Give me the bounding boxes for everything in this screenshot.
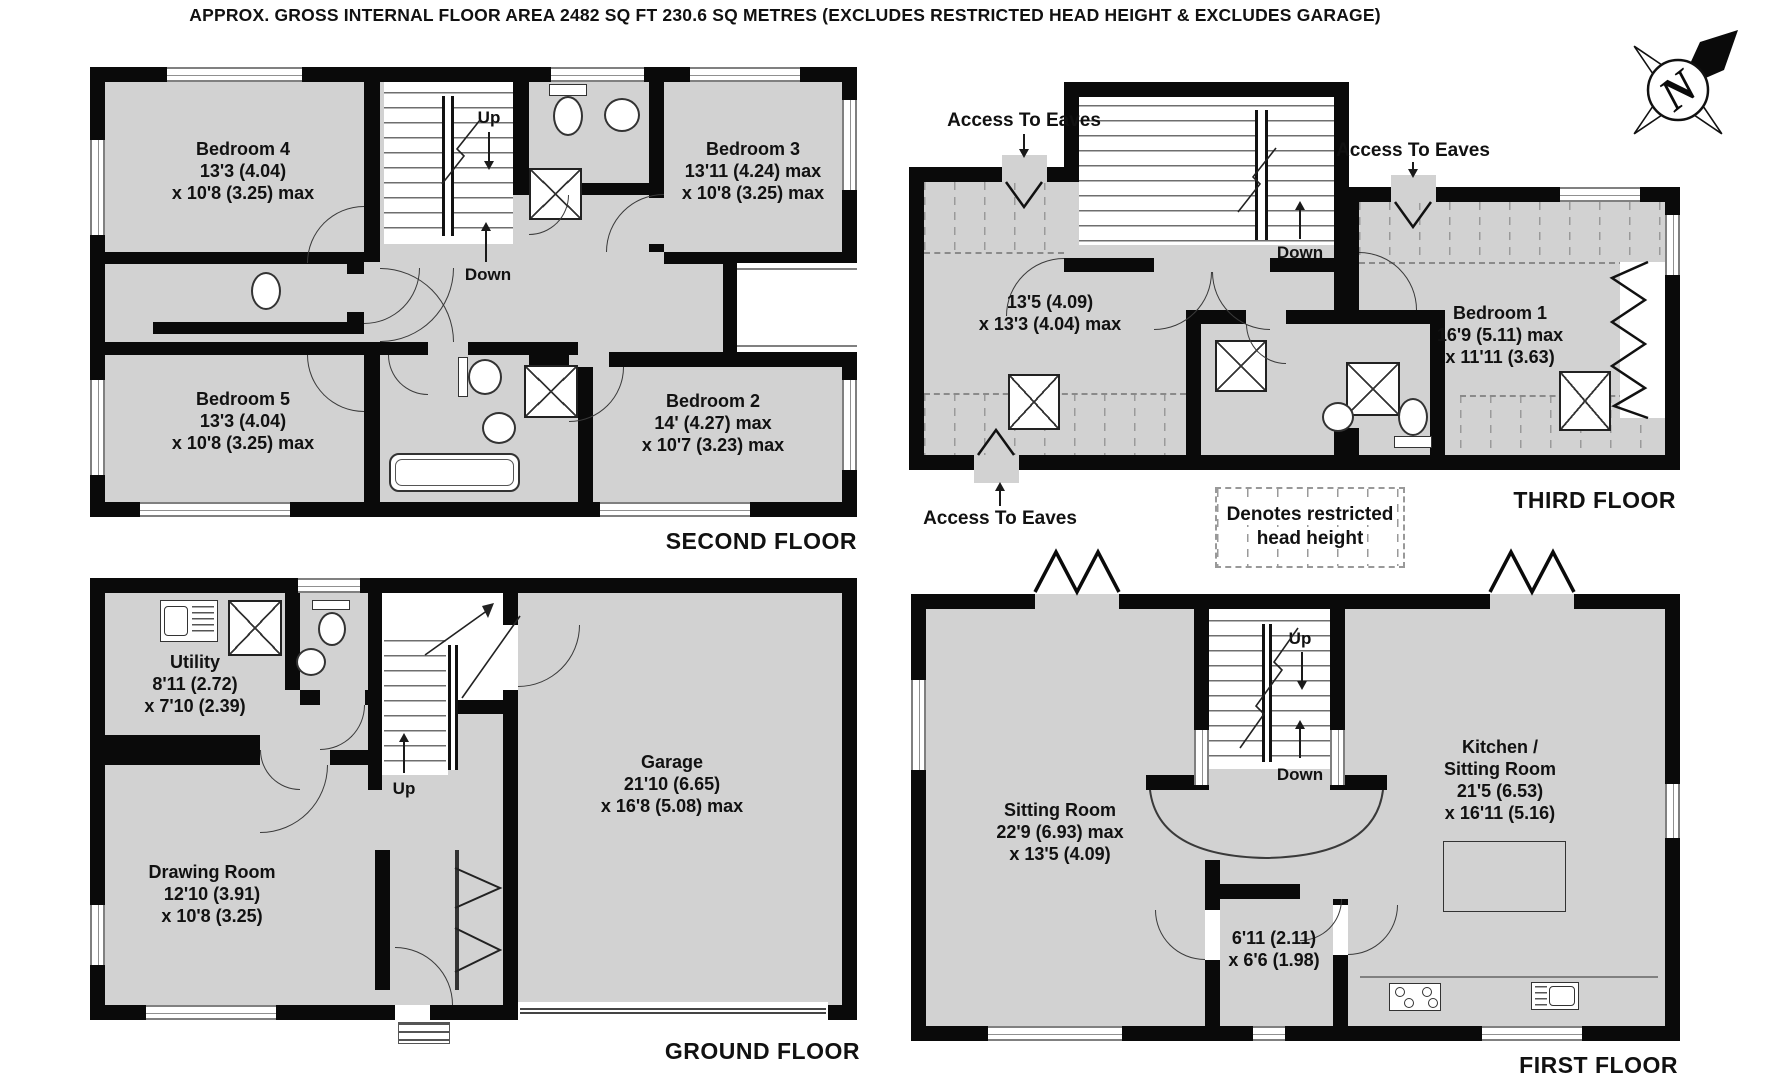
- stair-rail: [448, 645, 458, 770]
- window-line: [737, 268, 857, 270]
- third-floor-label: THIRD FLOOR: [1513, 487, 1676, 514]
- wall: [455, 850, 459, 990]
- toilet-icon: [553, 96, 583, 136]
- wall: [375, 850, 390, 990]
- toilet-icon: [468, 359, 502, 395]
- legend-box: Denotes restricted head height: [1215, 487, 1405, 568]
- room-label-utility: Utility 8'11 (2.72) x 7'10 (2.39): [144, 651, 245, 717]
- garage-door: [520, 1008, 826, 1014]
- window: [911, 680, 926, 770]
- stairs-down-arrow: [1299, 724, 1301, 758]
- burner-icon: [1422, 987, 1432, 997]
- counter-line: [1360, 976, 1658, 978]
- wall: [380, 342, 428, 355]
- sink-bowl-icon: [164, 606, 188, 636]
- wall: [330, 750, 390, 765]
- wall: [1286, 310, 1445, 324]
- drainer-icon: [192, 606, 214, 636]
- doorway-opening: [1194, 730, 1209, 785]
- burner-icon: [1428, 998, 1438, 1008]
- front-door-opening: [395, 1005, 430, 1020]
- stair-treads: [384, 640, 446, 772]
- sink-icon: [296, 648, 326, 676]
- burner-icon: [1404, 998, 1414, 1008]
- second-floor-label: SECOND FLOOR: [666, 528, 857, 555]
- window: [1665, 215, 1680, 275]
- sink-icon: [1322, 402, 1354, 432]
- window: [1482, 1026, 1582, 1041]
- wall: [1345, 775, 1387, 790]
- window: [551, 67, 644, 82]
- eaves-arrow: [1023, 134, 1025, 154]
- wall: [105, 342, 364, 355]
- wall: [1186, 310, 1201, 455]
- window-line: [737, 345, 857, 347]
- toilet-icon: [251, 272, 281, 310]
- stairs-up-arrow: [403, 737, 405, 773]
- page-title: APPROX. GROSS INTERNAL FLOOR AREA 2482 S…: [0, 5, 1570, 26]
- legend-text: Denotes restricted head height: [1217, 503, 1403, 551]
- toilet-icon: [549, 84, 587, 96]
- stair-rail: [1262, 624, 1272, 762]
- window: [90, 140, 105, 235]
- toilet-icon: [458, 357, 468, 397]
- room-label-garage: Garage 21'10 (6.65) x 16'8 (5.08) max: [601, 751, 743, 817]
- eaves-arrow: [999, 486, 1001, 506]
- bay-opening: [1490, 594, 1574, 609]
- wall: [468, 342, 578, 355]
- wall: [285, 593, 300, 690]
- floorplan-canvas: APPROX. GROSS INTERNAL FLOOR AREA 2482 S…: [0, 0, 1767, 1080]
- kitchen-island: [1443, 841, 1566, 912]
- stairs-down-label: Down: [465, 265, 511, 285]
- window: [988, 1026, 1122, 1041]
- wall: [153, 322, 364, 334]
- window: [842, 100, 857, 190]
- stair-rail: [442, 96, 454, 236]
- window: [1665, 784, 1680, 838]
- shower-icon: [1346, 362, 1400, 416]
- room-label-bedroom6: Bedroom 6 13'5 (4.09) x 13'3 (4.04) max: [979, 291, 1121, 335]
- wardrobe-icon: [1559, 371, 1611, 431]
- wall: [364, 82, 380, 262]
- wall: [105, 750, 260, 765]
- bay-zigzag: [1490, 552, 1574, 592]
- drainer-icon: [1535, 986, 1547, 1006]
- window: [600, 502, 750, 517]
- ground-floor-label: GROUND FLOOR: [665, 1038, 860, 1065]
- compass-rose: N: [1612, 24, 1744, 156]
- stairs-down-label: Down: [1277, 243, 1323, 263]
- access-to-eaves-label: Access To Eaves: [1336, 140, 1490, 162]
- bathtub-icon: [389, 453, 520, 492]
- window: [167, 67, 302, 82]
- room-label-landing: 6'11 (2.11) x 6'6 (1.98): [1228, 927, 1319, 971]
- stairs-up-label: Up: [478, 108, 501, 128]
- restricted-head-height: [1359, 202, 1665, 262]
- window: [690, 67, 800, 82]
- toilet-icon: [1394, 436, 1432, 448]
- window: [90, 380, 105, 475]
- room-label-bedroom4: Bedroom 4 13'3 (4.04) x 10'8 (3.25) max: [172, 138, 314, 204]
- doorway-opening: [1330, 730, 1345, 785]
- wall: [300, 690, 320, 705]
- wardrobe-icon: [1008, 374, 1060, 430]
- stairs-up-label: Up: [393, 779, 416, 799]
- hob-icon: [1389, 983, 1441, 1011]
- access-to-eaves-label: Access To Eaves: [923, 508, 1077, 530]
- room-label-bedroom5: Bedroom 5 13'3 (4.04) x 10'8 (3.25) max: [172, 388, 314, 454]
- first-floor-label: FIRST FLOOR: [1519, 1052, 1678, 1079]
- eaves-recess: [1620, 262, 1665, 418]
- room-label-sitting-room: Sitting Room 22'9 (6.93) max x 13'5 (4.0…: [996, 799, 1123, 865]
- wall: [1064, 258, 1154, 272]
- wall: [105, 735, 260, 750]
- wall: [364, 342, 380, 502]
- wall: [649, 82, 664, 198]
- window: [1560, 187, 1640, 202]
- window: [842, 380, 857, 470]
- room-label-drawing-room: Drawing Room 12'10 (3.91) x 10'8 (3.25): [148, 861, 275, 927]
- sink-icon: [482, 412, 516, 444]
- room-label-bedroom2: Bedroom 2 14' (4.27) max x 10'7 (3.23) m…: [642, 390, 784, 456]
- room-label-bedroom1: Bedroom 1 16'9 (5.11) max x 11'11 (3.63): [1437, 302, 1563, 368]
- bay-zigzag: [1035, 552, 1119, 592]
- room-label-bedroom3: Bedroom 3 13'11 (4.24) max x 10'8 (3.25)…: [682, 138, 824, 204]
- restricted-head-height: [924, 182, 1064, 252]
- wall: [347, 264, 364, 274]
- stair-rail: [1255, 110, 1268, 240]
- window: [146, 1005, 276, 1020]
- eaves-arrow: [1412, 162, 1414, 174]
- toilet-icon: [312, 600, 350, 610]
- toilet-icon: [318, 612, 346, 646]
- stair-treads: [1079, 105, 1334, 243]
- restricted-head-height-line: [924, 252, 1064, 254]
- window: [298, 578, 360, 593]
- wall: [347, 312, 364, 322]
- shower-icon: [228, 600, 282, 656]
- sink-icon: [604, 98, 640, 132]
- stairs-up-arrow: [488, 132, 490, 166]
- building-recess: [737, 263, 857, 352]
- stairs-down-label: Down: [1277, 765, 1323, 785]
- stairs-up-label: Up: [1289, 629, 1312, 649]
- bay-opening: [1035, 594, 1119, 609]
- wall: [513, 183, 525, 195]
- wall: [723, 252, 737, 367]
- wall: [513, 82, 529, 195]
- wall: [365, 690, 382, 705]
- wall: [1220, 884, 1300, 899]
- access-to-eaves-label: Access To Eaves: [947, 110, 1101, 132]
- burner-icon: [1395, 987, 1405, 997]
- window: [1253, 1026, 1285, 1041]
- doorway: [1205, 910, 1220, 960]
- toilet-icon: [1398, 398, 1428, 436]
- stairs-down-arrow: [1299, 205, 1301, 239]
- room-label-kitchen: Kitchen / Sitting Room 21'5 (6.53) x 16'…: [1444, 736, 1556, 824]
- doorway: [503, 625, 518, 690]
- wall: [1146, 775, 1194, 790]
- window: [140, 502, 290, 517]
- stairs-down-arrow: [485, 226, 487, 262]
- entry-steps: [398, 1022, 450, 1044]
- sink-bowl-icon: [1549, 986, 1575, 1006]
- window: [90, 905, 105, 965]
- stairs-up-arrow: [1301, 652, 1303, 686]
